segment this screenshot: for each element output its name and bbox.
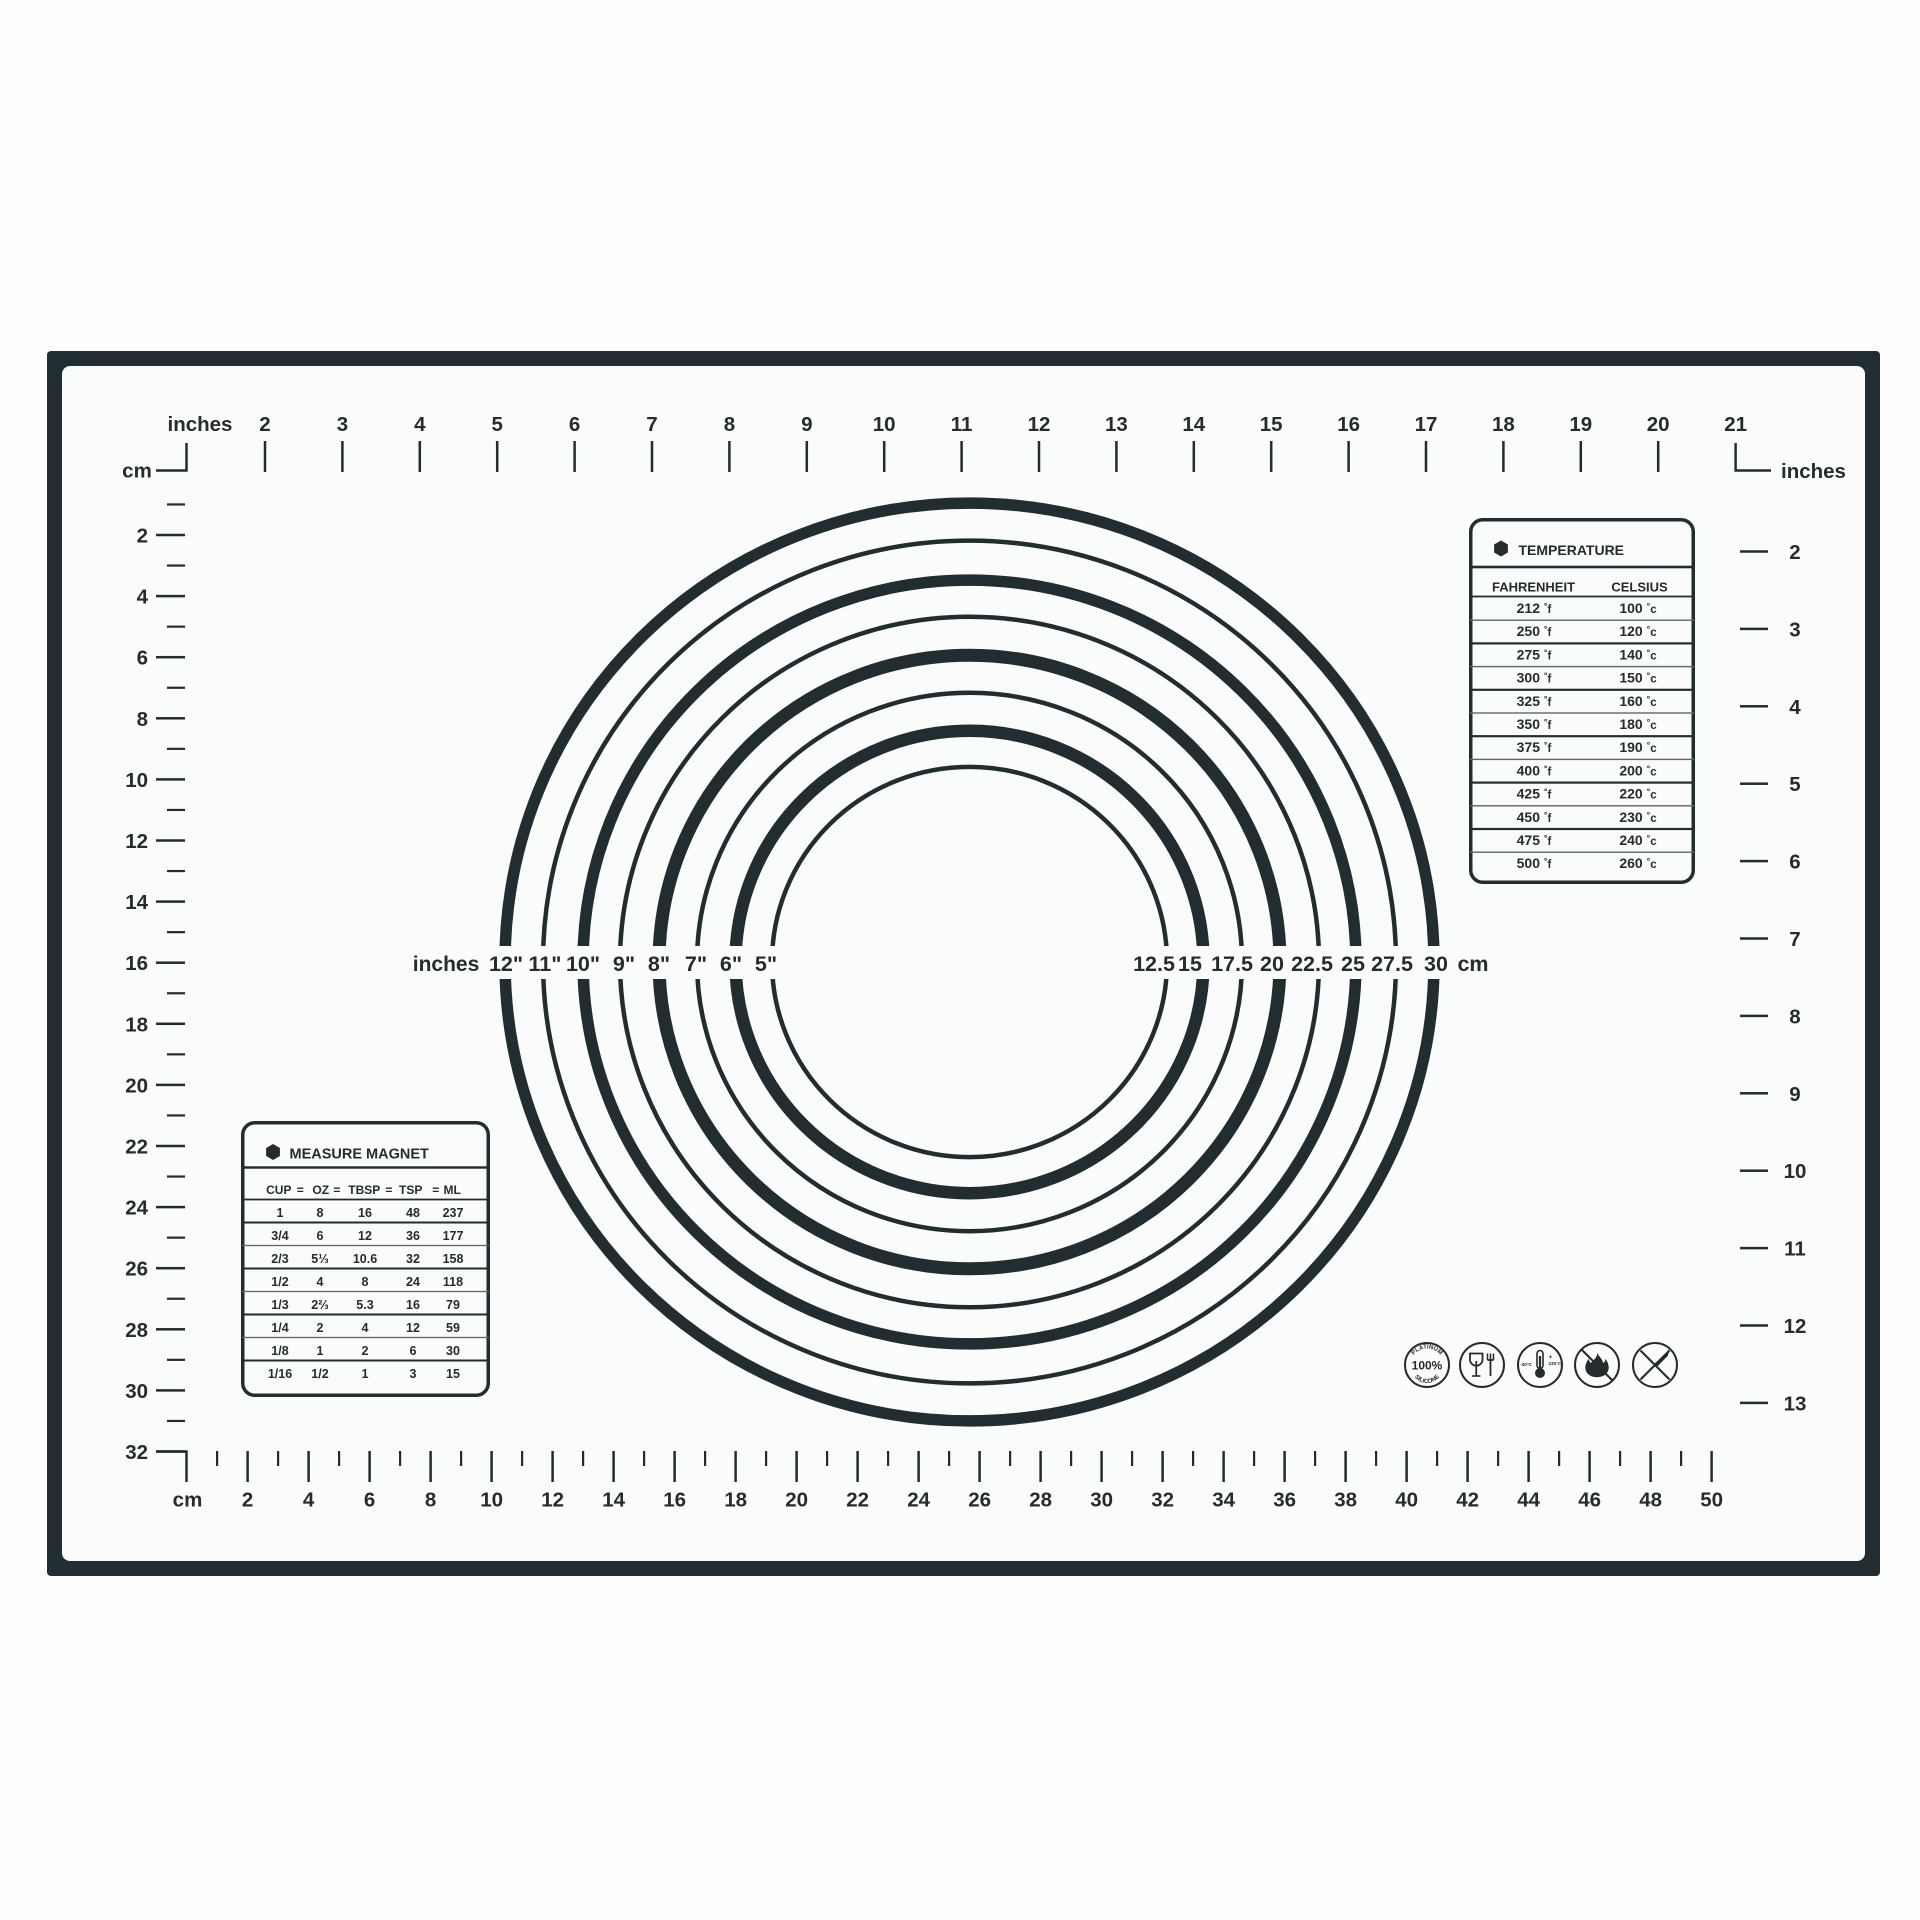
svg-text:26: 26 — [125, 1258, 148, 1281]
svg-text:48: 48 — [406, 1206, 420, 1220]
svg-text:cm: cm — [1457, 952, 1488, 976]
svg-text:8: 8 — [425, 1489, 436, 1512]
svg-text:34: 34 — [1212, 1489, 1235, 1512]
svg-text:50: 50 — [1700, 1489, 1723, 1512]
svg-text:TEMPERATURE: TEMPERATURE — [1519, 542, 1625, 558]
svg-text:8": 8" — [648, 952, 670, 976]
svg-text:18: 18 — [1492, 413, 1515, 436]
svg-text:OZ: OZ — [312, 1183, 329, 1197]
svg-text:10: 10 — [125, 769, 148, 792]
svg-text:16: 16 — [358, 1206, 372, 1220]
svg-text:20: 20 — [125, 1074, 148, 1097]
svg-text:17: 17 — [1415, 413, 1438, 436]
svg-text:12": 12" — [489, 952, 523, 976]
svg-text:13: 13 — [1784, 1392, 1807, 1415]
svg-text:22: 22 — [125, 1136, 148, 1159]
svg-text:237: 237 — [443, 1206, 464, 1220]
svg-text:12: 12 — [406, 1321, 420, 1335]
svg-text:16: 16 — [125, 952, 148, 975]
svg-text:3: 3 — [337, 413, 348, 436]
svg-text:4: 4 — [362, 1321, 369, 1335]
svg-text:=: = — [385, 1183, 392, 1197]
svg-text:inches: inches — [168, 413, 233, 436]
svg-text:=: = — [432, 1183, 439, 1197]
svg-text:18: 18 — [724, 1489, 747, 1512]
svg-text:-40°C: -40°C — [1520, 1362, 1532, 1367]
svg-text:4: 4 — [1789, 696, 1801, 719]
svg-text:15: 15 — [446, 1367, 460, 1381]
svg-text:2: 2 — [362, 1344, 369, 1358]
svg-text:36: 36 — [406, 1229, 420, 1243]
svg-text:4: 4 — [317, 1275, 324, 1289]
svg-text:30: 30 — [1090, 1489, 1113, 1512]
svg-text:2: 2 — [317, 1321, 324, 1335]
svg-text:79: 79 — [446, 1298, 460, 1312]
svg-text:12: 12 — [1028, 413, 1051, 436]
svg-text:10.6: 10.6 — [353, 1252, 377, 1266]
svg-text:36: 36 — [1273, 1489, 1296, 1512]
svg-text:2: 2 — [259, 413, 270, 436]
svg-text:1: 1 — [277, 1206, 284, 1220]
svg-text:8: 8 — [362, 1275, 369, 1289]
svg-text:TBSP: TBSP — [348, 1183, 380, 1197]
svg-text:20: 20 — [1647, 413, 1670, 436]
svg-text:24: 24 — [406, 1275, 420, 1289]
svg-text:230°C: 230°C — [1549, 1361, 1563, 1366]
svg-text:1/16: 1/16 — [268, 1367, 292, 1381]
svg-text:19: 19 — [1569, 413, 1592, 436]
svg-text:3/4: 3/4 — [271, 1229, 288, 1243]
svg-text:20: 20 — [1260, 952, 1284, 976]
svg-text:28: 28 — [125, 1319, 148, 1342]
svg-text:1/3: 1/3 — [271, 1298, 288, 1312]
svg-text:10: 10 — [873, 413, 896, 436]
svg-text:21: 21 — [1724, 413, 1747, 436]
svg-text:=: = — [333, 1183, 340, 1197]
svg-text:MEASURE MAGNET: MEASURE MAGNET — [290, 1147, 430, 1163]
svg-text:118: 118 — [443, 1275, 463, 1289]
svg-text:3: 3 — [410, 1367, 417, 1381]
svg-text:5⅓: 5⅓ — [311, 1252, 328, 1266]
svg-text:1/2: 1/2 — [311, 1367, 328, 1381]
svg-text:20: 20 — [785, 1489, 808, 1512]
svg-text:10: 10 — [480, 1489, 503, 1512]
svg-text:+: + — [1549, 1354, 1553, 1361]
svg-text:FAHRENHEIT: FAHRENHEIT — [1492, 580, 1575, 595]
svg-text:10": 10" — [566, 952, 600, 976]
svg-text:7": 7" — [685, 952, 707, 976]
svg-text:32: 32 — [125, 1441, 148, 1464]
svg-text:TSP: TSP — [399, 1183, 422, 1197]
svg-text:1: 1 — [362, 1367, 369, 1381]
svg-text:8: 8 — [1789, 1005, 1800, 1028]
svg-text:8: 8 — [724, 413, 735, 436]
svg-text:4: 4 — [414, 413, 426, 436]
svg-text:40: 40 — [1395, 1489, 1418, 1512]
svg-text:14: 14 — [602, 1489, 625, 1512]
svg-text:28: 28 — [1029, 1489, 1052, 1512]
svg-text:12: 12 — [358, 1229, 372, 1243]
svg-text:30: 30 — [1424, 952, 1448, 976]
svg-text:16: 16 — [1337, 413, 1360, 436]
svg-text:5.3: 5.3 — [356, 1298, 373, 1312]
svg-text:12.5: 12.5 — [1133, 952, 1175, 976]
svg-text:42: 42 — [1456, 1489, 1479, 1512]
svg-text:11: 11 — [951, 413, 973, 436]
svg-text:48: 48 — [1639, 1489, 1662, 1512]
svg-text:2/3: 2/3 — [271, 1252, 288, 1266]
svg-text:27.5: 27.5 — [1371, 952, 1413, 976]
svg-text:6": 6" — [720, 952, 742, 976]
svg-text:1/2: 1/2 — [271, 1275, 288, 1289]
svg-text:ML: ML — [444, 1183, 461, 1197]
svg-text:15: 15 — [1178, 952, 1202, 976]
svg-text:cm: cm — [173, 1489, 203, 1512]
svg-text:4: 4 — [303, 1489, 315, 1512]
svg-text:32: 32 — [406, 1252, 420, 1266]
svg-text:12: 12 — [125, 830, 148, 853]
svg-text:13: 13 — [1105, 413, 1128, 436]
svg-text:7: 7 — [646, 413, 657, 436]
svg-text:1/8: 1/8 — [271, 1344, 288, 1358]
svg-text:30: 30 — [446, 1344, 460, 1358]
svg-text:inches: inches — [1781, 460, 1846, 483]
svg-text:6: 6 — [364, 1489, 375, 1512]
svg-text:22: 22 — [846, 1489, 869, 1512]
svg-text:6: 6 — [137, 647, 148, 670]
svg-text:100%: 100% — [1412, 1359, 1443, 1373]
svg-text:3: 3 — [1789, 618, 1800, 641]
svg-text:38: 38 — [1334, 1489, 1357, 1512]
svg-text:158: 158 — [443, 1252, 464, 1266]
svg-text:9": 9" — [613, 952, 635, 976]
svg-text:11: 11 — [1784, 1238, 1806, 1261]
svg-text:8: 8 — [137, 708, 148, 731]
svg-text:46: 46 — [1578, 1489, 1601, 1512]
svg-text:6: 6 — [1789, 851, 1800, 874]
svg-text:cm: cm — [122, 460, 152, 483]
svg-text:1/4: 1/4 — [271, 1321, 288, 1335]
svg-text:30: 30 — [125, 1380, 148, 1403]
svg-text:9: 9 — [1789, 1083, 1800, 1106]
svg-text:177: 177 — [443, 1229, 464, 1243]
svg-text:22.5: 22.5 — [1291, 952, 1333, 976]
svg-text:14: 14 — [125, 891, 148, 914]
svg-text:5": 5" — [755, 952, 777, 976]
svg-text:6: 6 — [569, 413, 580, 436]
svg-text:15: 15 — [1260, 413, 1283, 436]
svg-text:10: 10 — [1784, 1160, 1807, 1183]
svg-text:inches: inches — [413, 953, 480, 976]
svg-text:8: 8 — [317, 1206, 324, 1220]
svg-text:59: 59 — [446, 1321, 460, 1335]
svg-text:25: 25 — [1341, 952, 1365, 976]
svg-text:5: 5 — [1789, 773, 1800, 796]
svg-text:2: 2 — [242, 1489, 253, 1512]
svg-text:16: 16 — [663, 1489, 686, 1512]
svg-text:44: 44 — [1517, 1489, 1540, 1512]
svg-text:18: 18 — [125, 1013, 148, 1036]
svg-text:4: 4 — [137, 586, 149, 609]
svg-text:17.5: 17.5 — [1211, 952, 1253, 976]
svg-text:24: 24 — [907, 1489, 930, 1512]
svg-text:=: = — [297, 1183, 304, 1197]
svg-text:16: 16 — [406, 1298, 420, 1312]
svg-text:6: 6 — [410, 1344, 417, 1358]
svg-text:26: 26 — [968, 1489, 991, 1512]
svg-text:12: 12 — [1784, 1315, 1807, 1338]
svg-text:5: 5 — [491, 413, 502, 436]
svg-text:32: 32 — [1151, 1489, 1174, 1512]
svg-text:1: 1 — [317, 1344, 324, 1358]
svg-text:CELSIUS: CELSIUS — [1611, 580, 1668, 595]
svg-text:6: 6 — [317, 1229, 324, 1243]
svg-text:24: 24 — [125, 1197, 148, 1220]
svg-text:14: 14 — [1182, 413, 1205, 436]
svg-text:7: 7 — [1789, 928, 1800, 951]
svg-text:2⅔: 2⅔ — [311, 1298, 328, 1312]
svg-text:9: 9 — [801, 413, 812, 436]
svg-text:11": 11" — [529, 952, 562, 976]
svg-text:12: 12 — [541, 1489, 564, 1512]
svg-text:2: 2 — [137, 525, 148, 548]
svg-text:CUP: CUP — [266, 1183, 291, 1197]
svg-text:2: 2 — [1789, 541, 1800, 564]
